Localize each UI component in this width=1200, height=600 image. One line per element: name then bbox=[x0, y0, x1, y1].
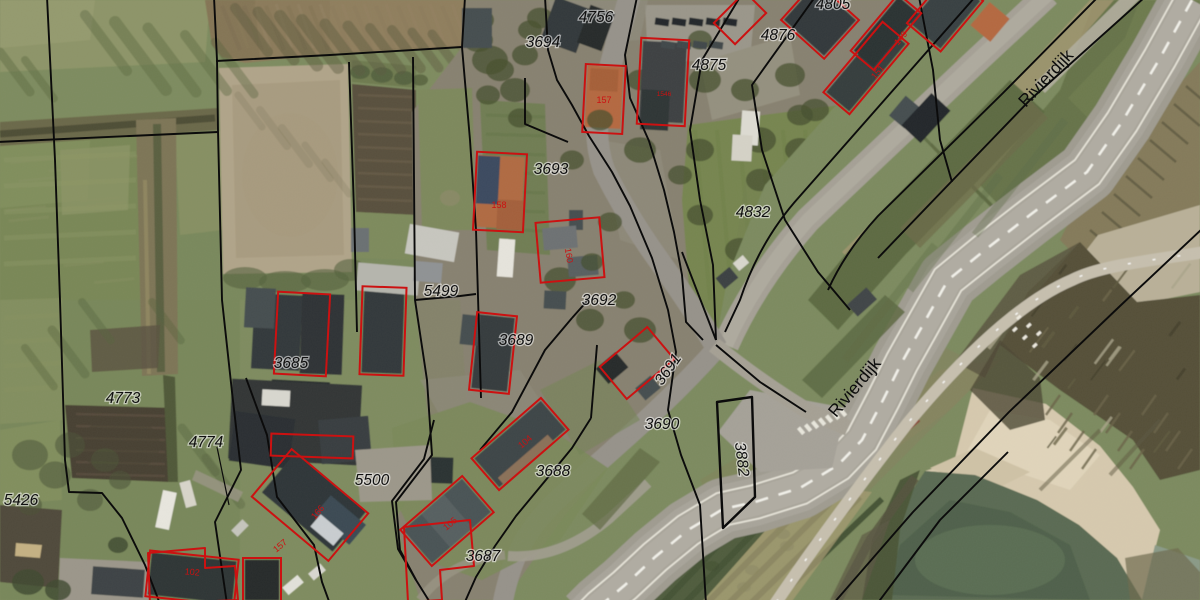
svg-text:3693: 3693 bbox=[534, 161, 569, 178]
svg-text:4773: 4773 bbox=[106, 390, 141, 407]
svg-text:4774: 4774 bbox=[189, 434, 224, 451]
svg-text:5500: 5500 bbox=[355, 472, 390, 489]
svg-text:5499: 5499 bbox=[424, 283, 459, 300]
svg-text:102: 102 bbox=[184, 566, 200, 577]
svg-text:4805: 4805 bbox=[816, 0, 851, 13]
svg-text:3689: 3689 bbox=[499, 332, 534, 349]
svg-text:3688: 3688 bbox=[536, 463, 571, 480]
svg-text:3692: 3692 bbox=[582, 292, 617, 309]
svg-text:3690: 3690 bbox=[645, 416, 680, 433]
svg-text:158: 158 bbox=[491, 200, 506, 210]
svg-text:157: 157 bbox=[596, 95, 611, 105]
svg-text:3694: 3694 bbox=[526, 34, 561, 51]
svg-text:3685: 3685 bbox=[274, 355, 309, 372]
svg-text:3687: 3687 bbox=[466, 548, 502, 565]
svg-text:4756: 4756 bbox=[579, 9, 614, 26]
svg-text:4832: 4832 bbox=[736, 204, 771, 221]
svg-text:4875: 4875 bbox=[692, 57, 727, 74]
svg-text:4876: 4876 bbox=[761, 27, 796, 44]
svg-text:5426: 5426 bbox=[4, 492, 39, 509]
svg-text:1546: 1546 bbox=[657, 91, 672, 98]
